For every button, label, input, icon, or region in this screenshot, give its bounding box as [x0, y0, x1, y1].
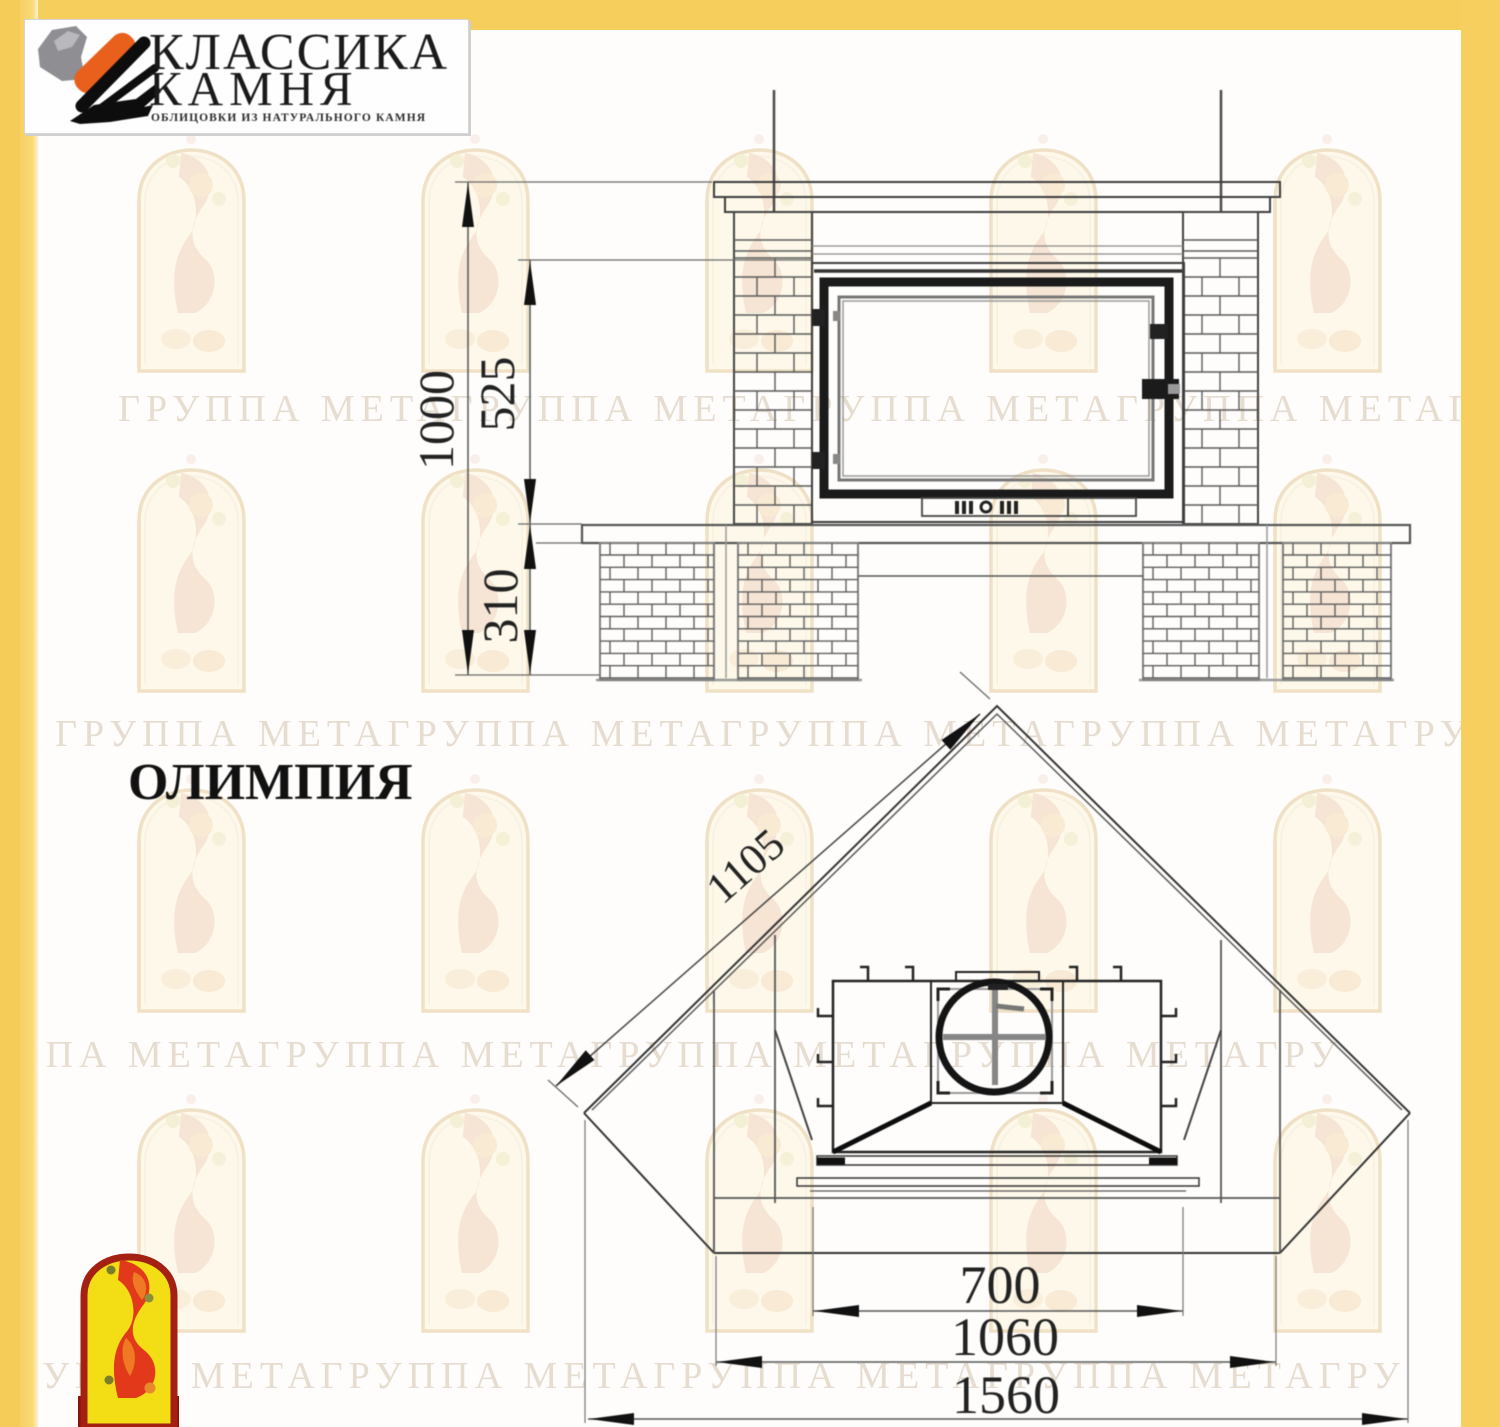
svg-text:ОЛИМПИЯ: ОЛИМПИЯ — [128, 754, 413, 811]
svg-text:1000: 1000 — [408, 370, 464, 470]
svg-text:1560: 1560 — [952, 1365, 1060, 1425]
svg-text:525: 525 — [469, 357, 525, 432]
svg-text:700: 700 — [960, 1255, 1041, 1315]
svg-text:ОБЛИЦОВКИ ИЗ НАТУРАЛЬНОГО КАМН: ОБЛИЦОВКИ ИЗ НАТУРАЛЬНОГО КАМНЯ — [151, 112, 426, 124]
svg-text:1060: 1060 — [951, 1307, 1059, 1367]
svg-text:КАМНЯ: КАМНЯ — [149, 61, 359, 116]
svg-text:310: 310 — [472, 569, 528, 644]
svg-text:1105: 1105 — [697, 819, 794, 913]
